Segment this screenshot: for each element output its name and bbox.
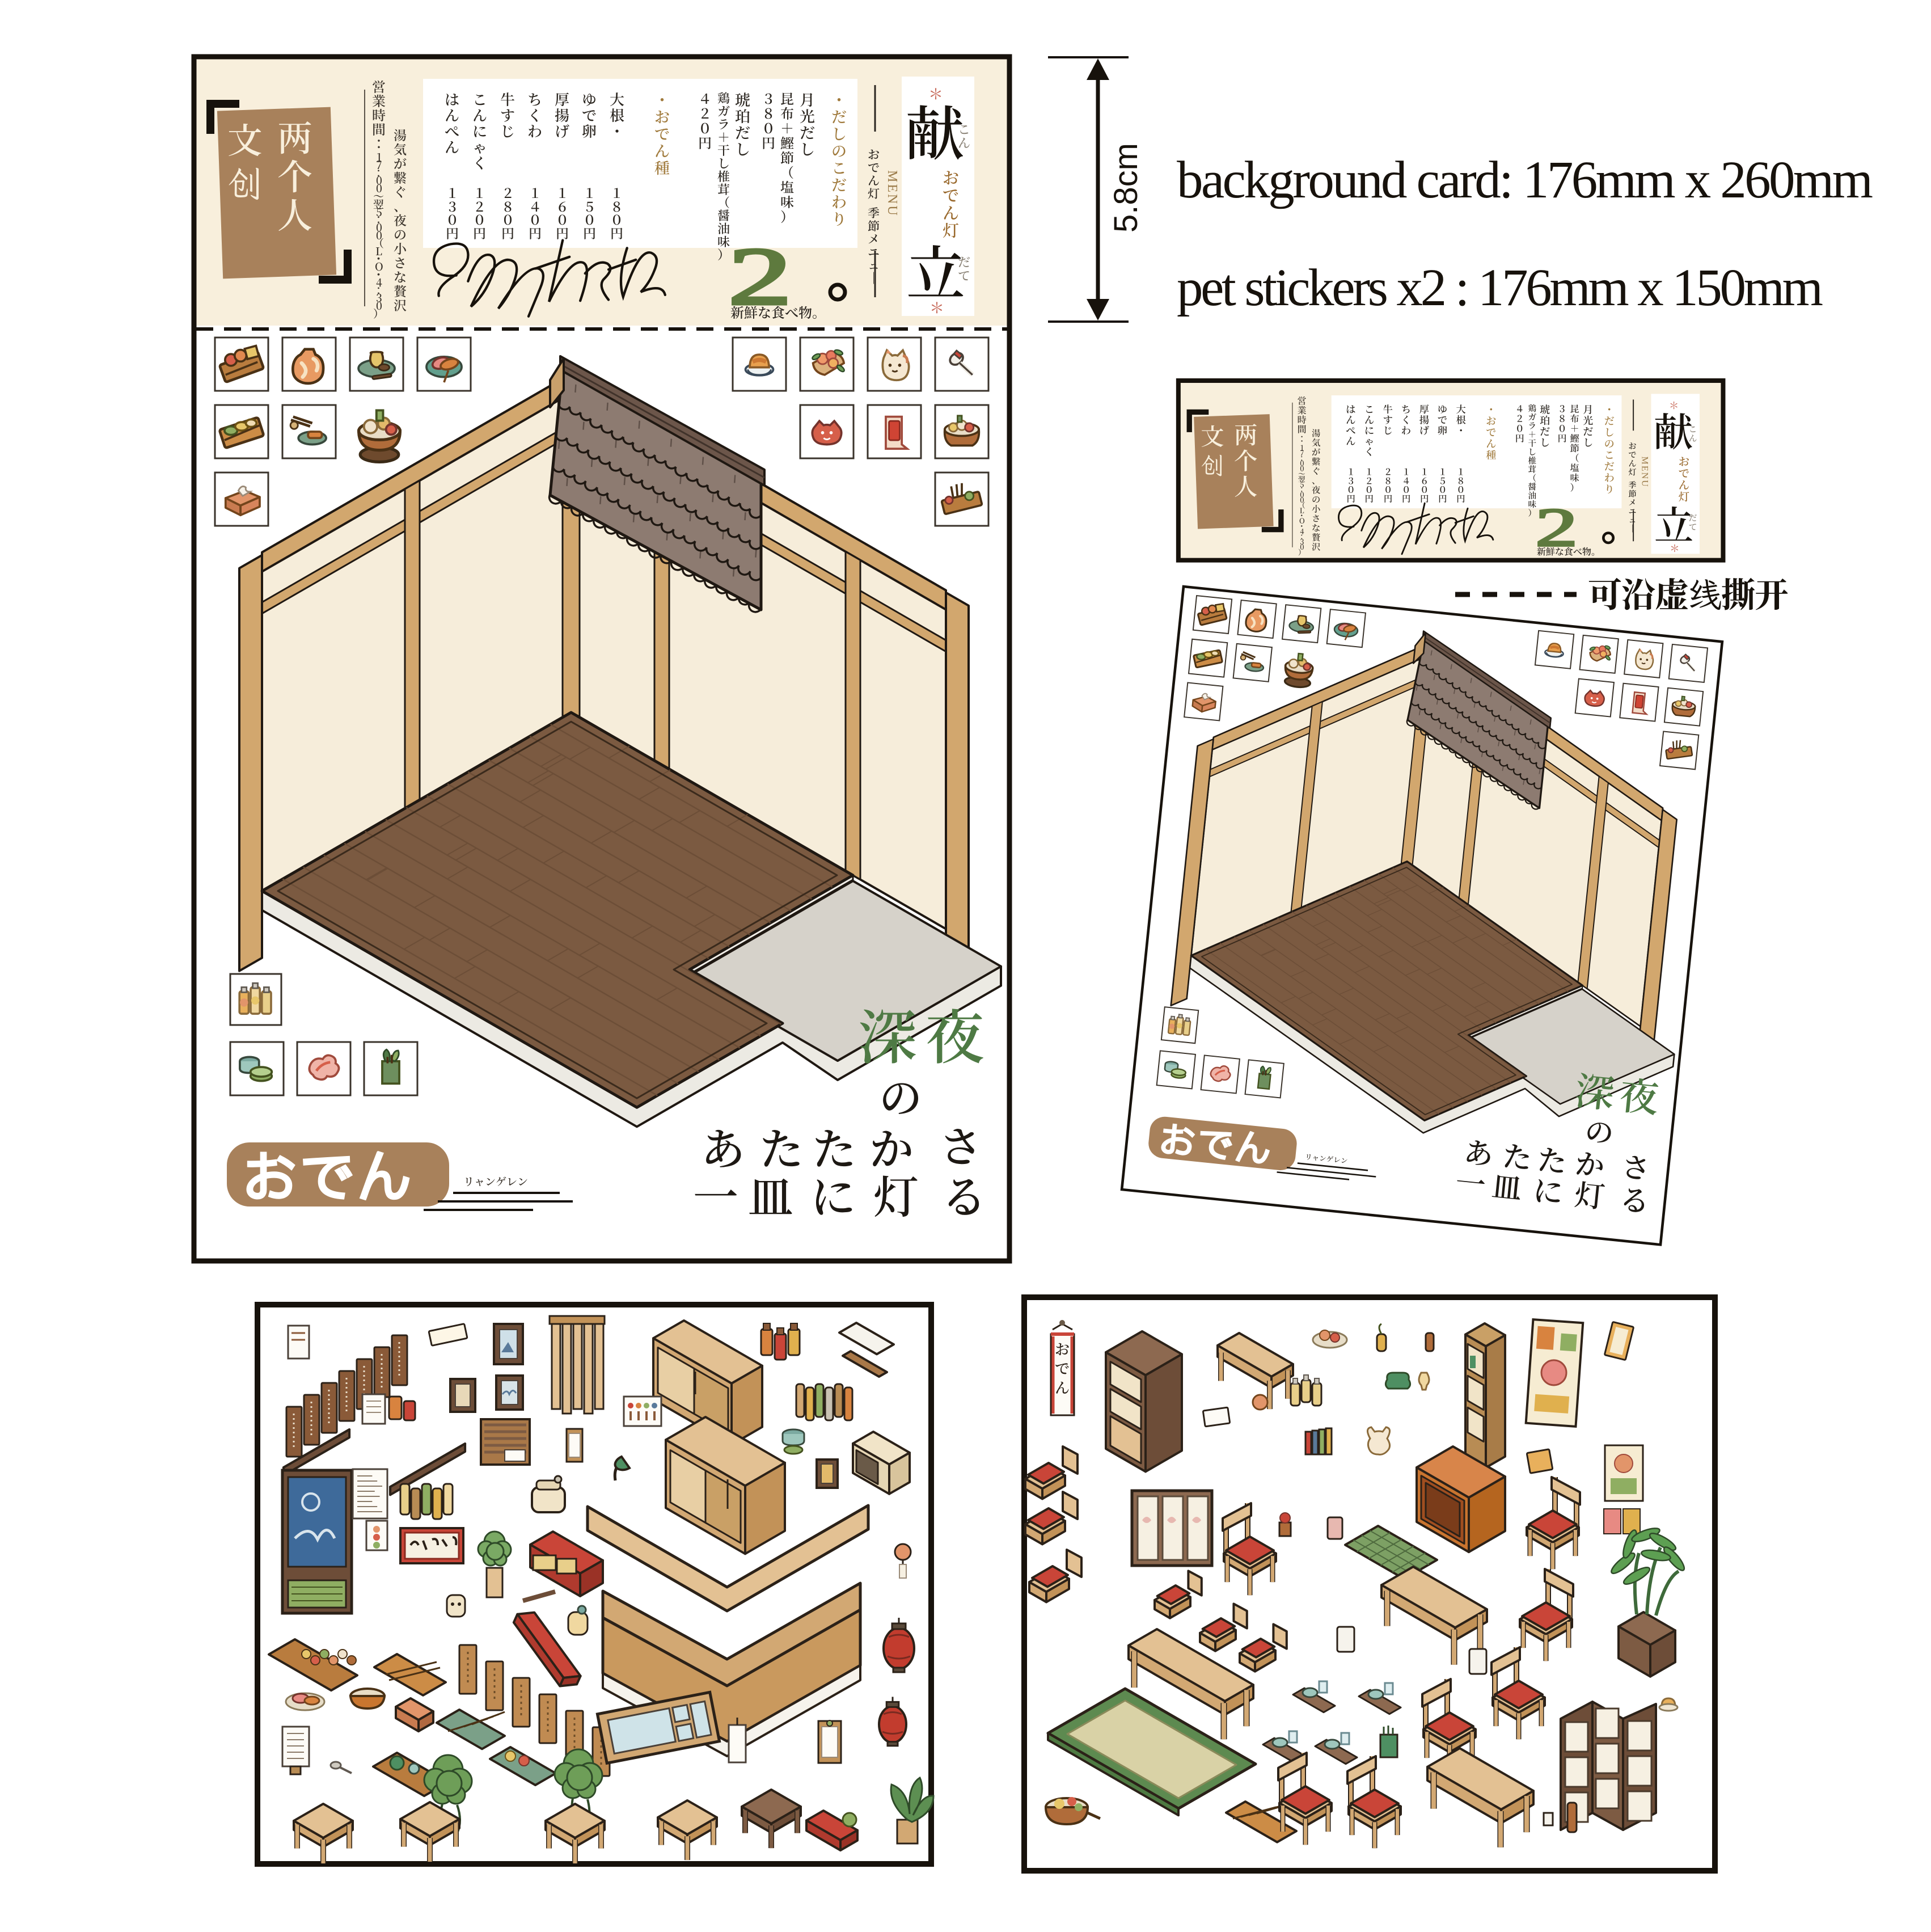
svg-text:5.8cm: 5.8cm — [1108, 143, 1144, 233]
svg-text:background card: 176mm x 260mm: background card: 176mm x 260mm — [1177, 151, 1873, 209]
svg-text:pet stickers x2 : 176mm x 150m: pet stickers x2 : 176mm x 150mm — [1177, 259, 1823, 317]
